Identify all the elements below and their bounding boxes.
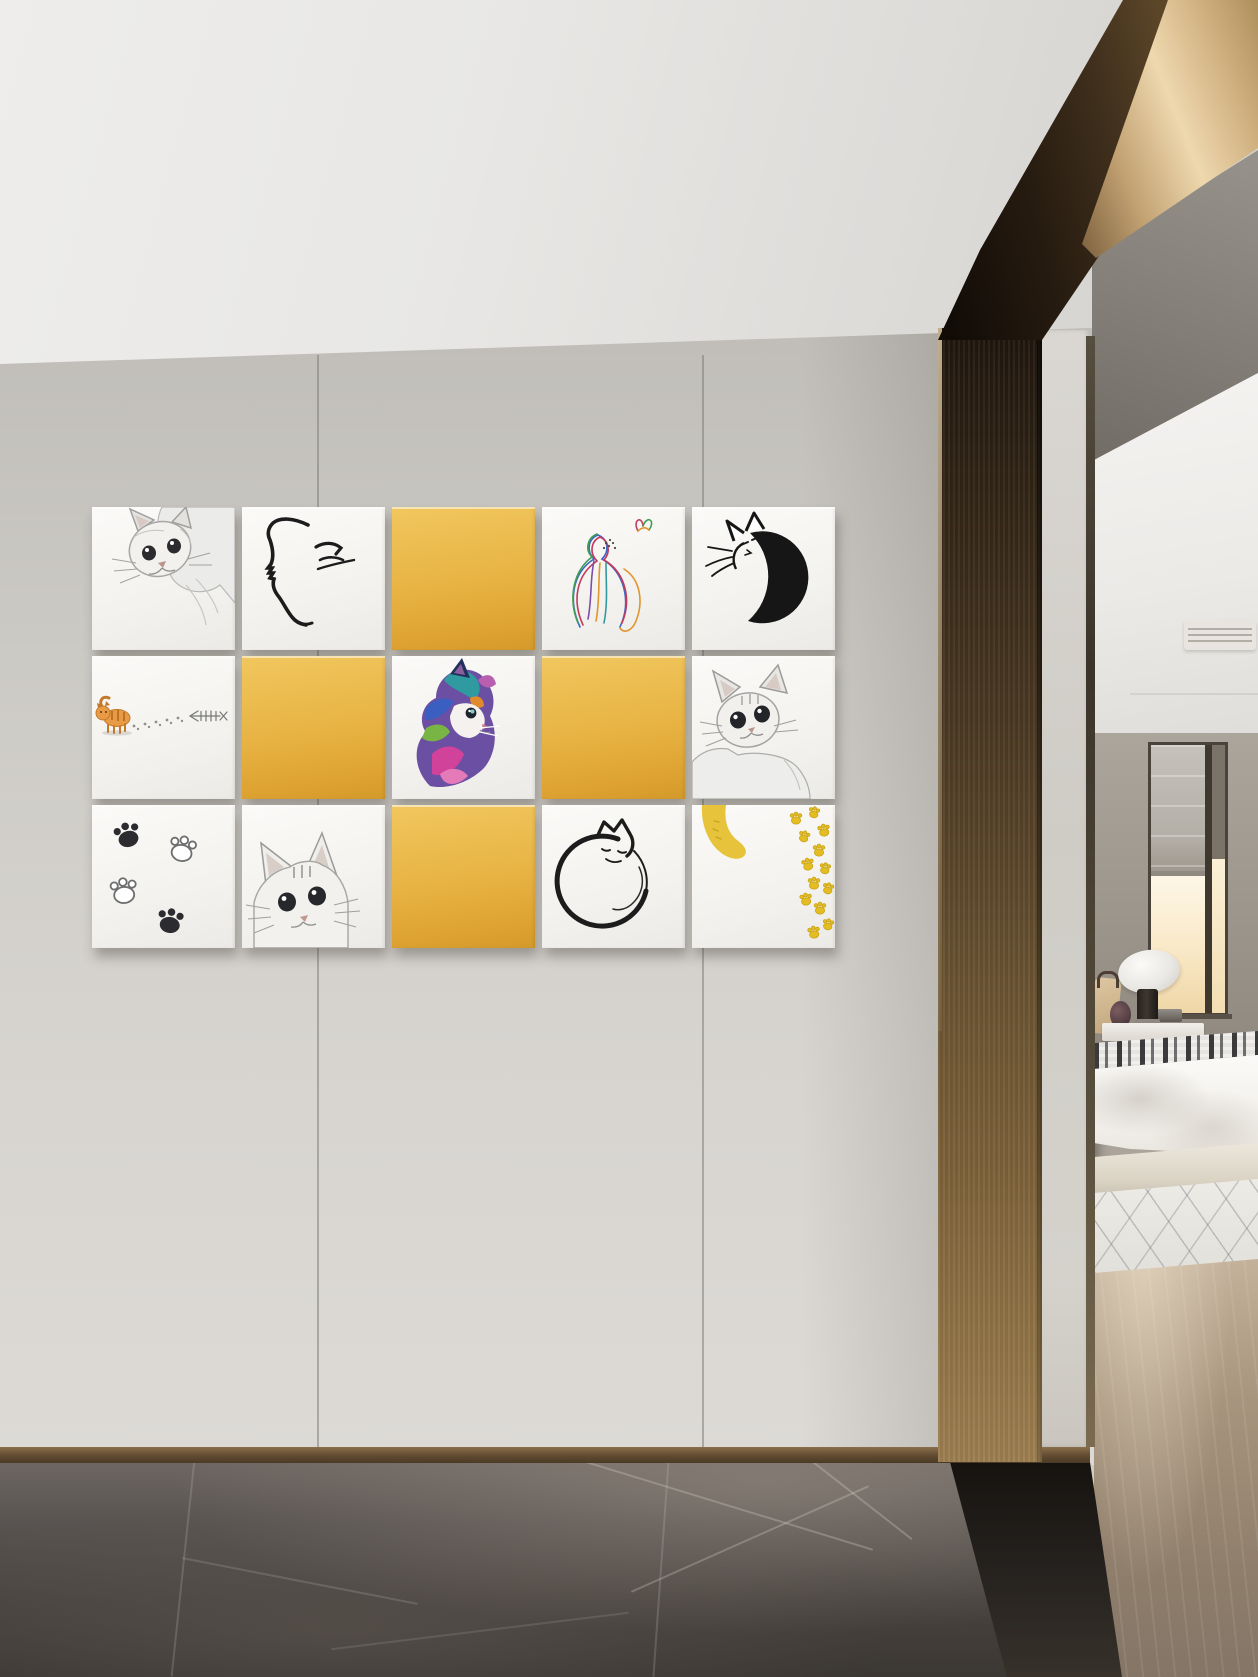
rainbow-line-cat-icon [542,507,685,650]
window-pane-shaded [1212,745,1225,859]
door-jamb [1042,330,1090,1447]
sketch-cat-top-icon [92,507,235,650]
tile-r1c4-rainbow-line-cat [542,507,685,650]
window-mullion [1205,745,1212,1013]
bedroom-wood-floor [1094,1248,1258,1677]
tile-r2c3-rainbow-kitten [392,656,535,799]
crescent-cat-icon [692,507,835,650]
tile-r1c2-ink-profile [242,507,385,650]
air-vent-slats [1188,624,1252,646]
bronze-baseboard [0,1447,1090,1463]
rainbow-kitten-icon [392,656,535,799]
tile-r2c4-yellow [542,656,685,799]
interior-photo-scene [0,0,1258,1677]
floor-tile-seam [652,1460,669,1677]
paw-prints-icon [92,805,235,948]
air-vent [1184,620,1256,650]
window-sunlight-left [1151,876,1205,1013]
tile-r1c3-yellow [392,507,535,650]
window-sunlight-right [1212,859,1225,1013]
bedroom-soffit-line [1130,693,1258,695]
tile-r3c2-sketch-head [242,805,385,948]
kitten-trail-icon [92,656,235,799]
tile-r3c5-tail-paws [692,805,835,948]
tile-r1c5-crescent-cat [692,507,835,650]
cat-art-tile-grid [92,507,835,948]
tail-paws-icon [692,805,835,948]
tile-r3c4-curled-cat [542,805,685,948]
tile-r2c1-kitten-trail [92,656,235,799]
curled-cat-icon [542,805,685,948]
marble-vein [331,1612,629,1651]
tile-r2c5-sketch-cat-bottom [692,656,835,799]
tile-r2c2-yellow [242,656,385,799]
bronze-column [938,328,1042,1462]
ink-profile-icon [242,507,385,650]
floor-tile-seam [171,1460,196,1676]
tile-r3c3-yellow [392,805,535,948]
doorway-bedroom-view [1094,333,1258,1677]
sketch-cat-bottom-icon [692,656,835,799]
table-lamp-base [1137,989,1158,1022]
cushion-strap [1097,971,1119,988]
tile-r3c1-paw-prints [92,805,235,948]
roman-blind [1151,745,1212,876]
tile-r1c1-sketch-cat-top [92,507,235,650]
marble-vein [182,1557,418,1605]
bed-duvet [1094,1055,1258,1159]
sketch-head-icon [242,805,385,948]
bedroom-rug [1094,1179,1258,1273]
door-frame-edge [1086,336,1095,1447]
